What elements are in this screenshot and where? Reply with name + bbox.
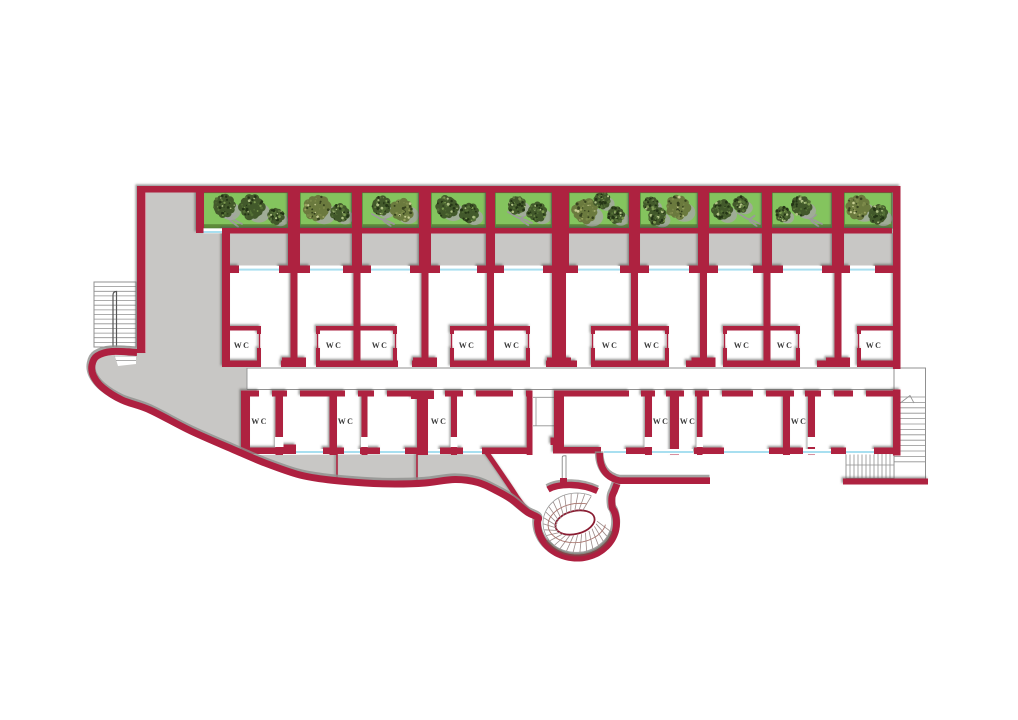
svg-text:WC: WC bbox=[734, 341, 751, 350]
svg-text:WC: WC bbox=[777, 341, 794, 350]
svg-text:WC: WC bbox=[326, 341, 343, 350]
svg-text:WC: WC bbox=[866, 341, 883, 350]
svg-text:WC: WC bbox=[504, 341, 521, 350]
svg-text:WC: WC bbox=[338, 417, 355, 426]
svg-text:WC: WC bbox=[791, 417, 808, 426]
svg-text:WC: WC bbox=[234, 341, 251, 350]
svg-text:WC: WC bbox=[680, 417, 697, 426]
svg-text:WC: WC bbox=[602, 341, 619, 350]
svg-text:WC: WC bbox=[251, 417, 268, 426]
svg-text:WC: WC bbox=[431, 417, 448, 426]
svg-text:WC: WC bbox=[653, 417, 670, 426]
svg-text:WC: WC bbox=[459, 341, 476, 350]
svg-text:WC: WC bbox=[644, 341, 661, 350]
svg-text:WC: WC bbox=[372, 341, 389, 350]
